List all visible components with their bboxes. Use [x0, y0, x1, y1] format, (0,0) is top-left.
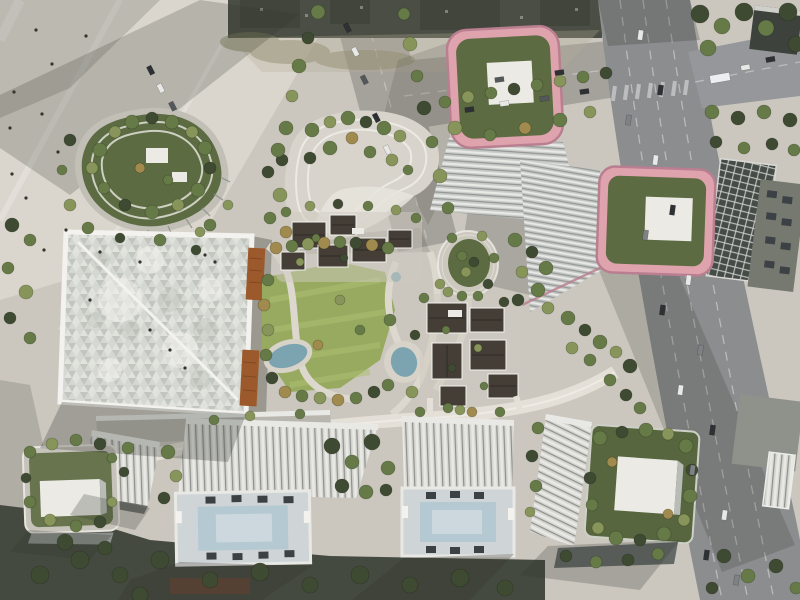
slab-b-roof-courtyard: [402, 488, 514, 556]
se-roof-pad: [614, 456, 678, 514]
tower-2-roof-pad: [644, 197, 692, 242]
tower-1-roof: [446, 25, 564, 149]
aerial-rendering: [0, 0, 800, 600]
tower-2-roof: [596, 166, 716, 276]
masterplan-scene: [0, 0, 800, 600]
roof-pavilion: [146, 148, 168, 163]
courtyard-village-south: [420, 294, 520, 422]
slab-a-roof-courtyard: [175, 491, 310, 565]
gridshell-hall: [60, 232, 272, 416]
office-slab-b: [402, 416, 514, 556]
